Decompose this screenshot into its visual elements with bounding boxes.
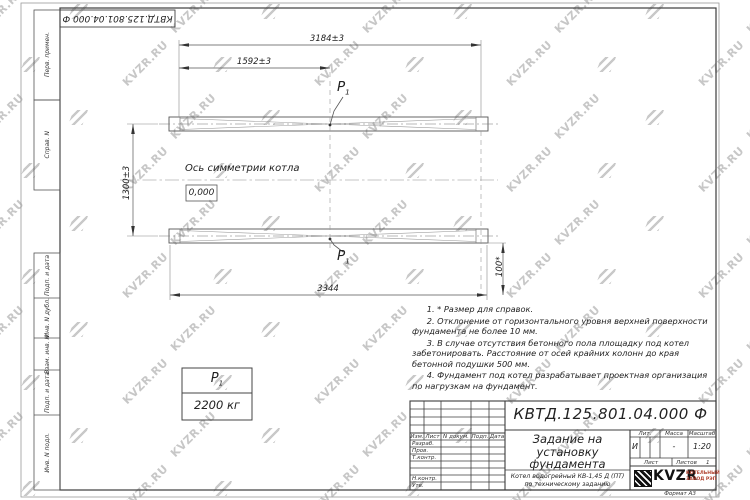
margin-box-podp-data-2: Подп. и дата (34, 370, 60, 415)
lit-label: Лит. (630, 431, 660, 437)
row-razrab: Разраб. (412, 441, 434, 447)
title-block-doc-number: КВТД.125.801.04.000 Ф (505, 405, 716, 423)
scale-label: Масштаб (688, 431, 716, 437)
format-label: Формат А3 (645, 491, 715, 497)
dim-3184: 3184±3 (310, 34, 344, 44)
dim-1592: 1592±3 (237, 57, 271, 67)
row-utv: Утв. (412, 483, 424, 489)
col-izm: Изм. (410, 434, 424, 440)
margin-label: Инв. N подл. (44, 433, 51, 473)
mass-value: - (660, 442, 688, 451)
title-block-title: Задание на установку фундамента (505, 433, 630, 471)
margin-box-vzam-inv: Взам. инв. N (34, 338, 60, 370)
margin-label: Справ. N (44, 131, 51, 158)
row-nkontr: Н.контр. (412, 476, 437, 482)
drawing-linework (0, 0, 750, 500)
margin-box-podp-data-1: Подп. и дата (34, 253, 60, 298)
symmetry-axis-label: Ось симметрии котла (185, 163, 300, 174)
col-list: Лист (424, 434, 441, 440)
load-point-symbol: P (337, 248, 345, 264)
scale-value: 1:20 (688, 442, 716, 451)
sheets-value: 1 (706, 460, 710, 466)
note-3: 3. В случае отсутствия бетонного пола пл… (412, 338, 714, 370)
margin-label: Перв. примен. (44, 32, 51, 77)
row-prov: Пров. (412, 448, 428, 454)
load-point-index: 1 (219, 379, 224, 388)
sheets-label: Листов (676, 460, 697, 466)
note-4: 4. Фундамент под котел разрабатывает про… (412, 370, 714, 391)
row-tkontr: Т.контр. (412, 455, 436, 461)
beam-bottom (159, 229, 498, 243)
dim-100: 100* (495, 257, 505, 277)
margin-label: Подп. и дата (44, 255, 51, 296)
dim-3344: 3344 (317, 284, 339, 294)
product-description: Котел водогрейный КВ-1,45 Д (ПТ) по техн… (505, 473, 630, 490)
dim-1300: 1300±3 (122, 166, 132, 200)
note-2: 2. Отклонение от горизонтального уровня … (412, 316, 714, 337)
margin-label: Инв. N дубл. (44, 298, 51, 337)
col-podp: Подп. (471, 434, 489, 440)
margin-box-perv-primen: Перв. примен. (34, 10, 60, 100)
kvzr-logo-caption: КОТЕЛЬНЫЙ ЗАВОД РЭП (686, 471, 720, 483)
load-point-label-top: P1 (337, 79, 350, 97)
load-point-index: 1 (345, 257, 350, 266)
kvzr-logo-icon (634, 470, 652, 487)
dimension-lines (127, 40, 506, 300)
lit-value: И (630, 442, 640, 451)
load-point-symbol: P (211, 371, 219, 386)
level-mark-value: 0,000 (186, 185, 217, 201)
margin-box-inv-dubl: Инв. N дубл. (34, 298, 60, 338)
margin-box-sprav-n: Справ. N (34, 100, 60, 190)
margin-box-inv-podl: Инв. N подл. (34, 415, 60, 490)
col-ndoc: N докум. (441, 434, 471, 440)
title-line: Задание на (505, 433, 630, 446)
load-point-label-bottom: P1 (337, 248, 350, 266)
top-stamp-doc-number: КВТД.125.801.04.000 Ф (60, 10, 175, 27)
logo-caption-line: ЗАВОД РЭП (686, 477, 720, 483)
beam-top (159, 117, 498, 131)
load-point-symbol: P (337, 79, 345, 95)
technical-notes: 1. * Размер для справок. 2. Отклонение о… (412, 304, 714, 392)
margin-label: Взам. инв. N (44, 335, 51, 374)
product-line: Котел водогрейный КВ-1,45 Д (ПТ) (505, 473, 630, 481)
mass-label: Масса (660, 431, 688, 437)
load-table-value: 2200 кг (182, 398, 252, 412)
load-point-index: 1 (345, 88, 350, 97)
margin-label: Подп. и дата (44, 372, 51, 413)
load-table-header: P1 (182, 371, 252, 388)
product-line: по техническому заданию (505, 481, 630, 489)
sheet-label: Лист (630, 460, 672, 466)
drawing-sheet: KVZR.RUKVZR.RUKVZR.RUKVZR.RUKVZR.RUKVZR.… (0, 0, 750, 500)
title-line: фундамента (505, 458, 630, 471)
col-data: Дата (489, 434, 505, 440)
note-1: 1. * Размер для справок. (412, 304, 714, 315)
